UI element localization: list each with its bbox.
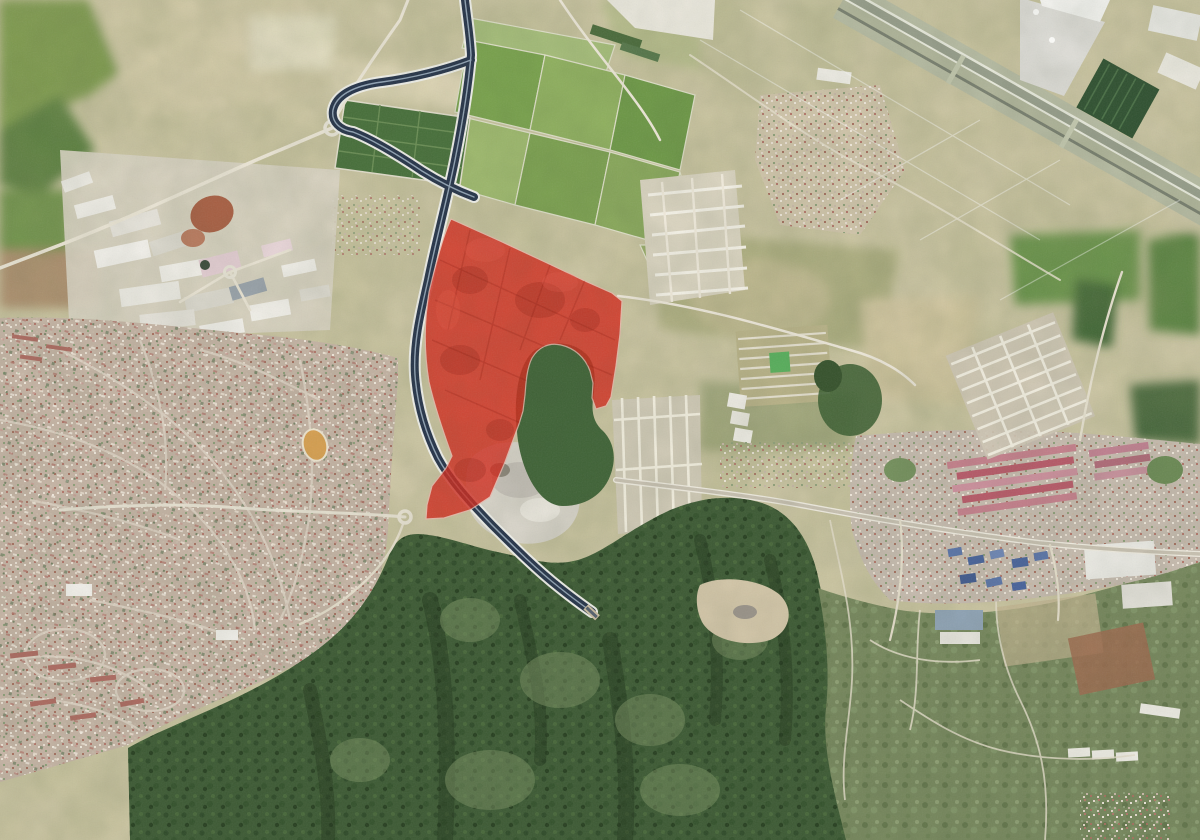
photo-mottle xyxy=(0,0,1200,840)
aerial-map-canvas xyxy=(0,0,1200,840)
satellite-image xyxy=(0,0,1200,840)
